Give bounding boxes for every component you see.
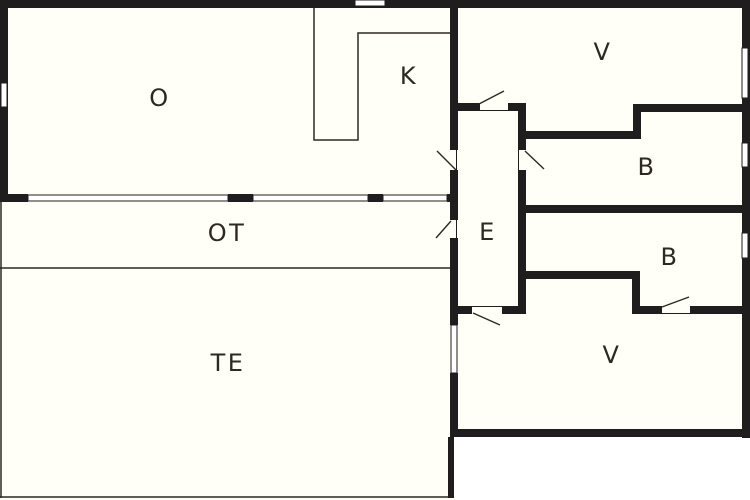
window xyxy=(742,48,748,98)
window xyxy=(253,195,368,201)
exterior-area xyxy=(454,437,750,500)
room-label-k: K xyxy=(400,62,418,90)
wall xyxy=(518,271,632,279)
wall xyxy=(632,271,640,314)
door-opening-edge xyxy=(456,150,457,170)
window xyxy=(355,0,385,6)
room-label-v-bottom: V xyxy=(603,341,622,369)
wall xyxy=(448,437,454,498)
wall xyxy=(450,8,458,150)
wall xyxy=(458,103,480,111)
window xyxy=(742,143,748,167)
door-opening-edge xyxy=(662,313,690,314)
door-opening-edge xyxy=(480,110,508,111)
window xyxy=(28,195,228,201)
wall xyxy=(450,306,472,314)
room-label-o: O xyxy=(149,84,170,112)
wall xyxy=(450,373,458,437)
wall xyxy=(8,194,28,202)
plan-background xyxy=(0,0,750,500)
door-opening-edge xyxy=(518,150,519,170)
door-opening-edge xyxy=(456,220,457,238)
wall xyxy=(368,194,383,202)
wall xyxy=(518,103,526,150)
wall xyxy=(641,104,750,112)
wall xyxy=(450,170,458,220)
room-label-v-top: V xyxy=(594,38,613,66)
wall xyxy=(526,131,633,139)
floor-plan: OKVBBVEOTTE xyxy=(0,0,750,500)
window xyxy=(1,83,7,107)
window xyxy=(383,195,447,201)
door-opening-edge xyxy=(472,306,502,307)
room-label-e: E xyxy=(479,218,497,246)
room-label-b-upper: B xyxy=(638,153,657,181)
wall xyxy=(228,194,253,202)
wall xyxy=(640,306,662,314)
wall xyxy=(633,104,641,139)
wall xyxy=(450,429,750,437)
wall xyxy=(502,306,526,314)
wall xyxy=(690,306,750,314)
window xyxy=(742,233,748,258)
room-label-b-lower: B xyxy=(661,243,680,271)
wall xyxy=(518,170,526,314)
window xyxy=(451,325,457,373)
room-label-te: TE xyxy=(210,349,246,377)
wall xyxy=(518,205,750,213)
floor-plan-svg: OKVBBVEOTTE xyxy=(0,0,750,500)
room-label-ot: OT xyxy=(208,219,247,247)
